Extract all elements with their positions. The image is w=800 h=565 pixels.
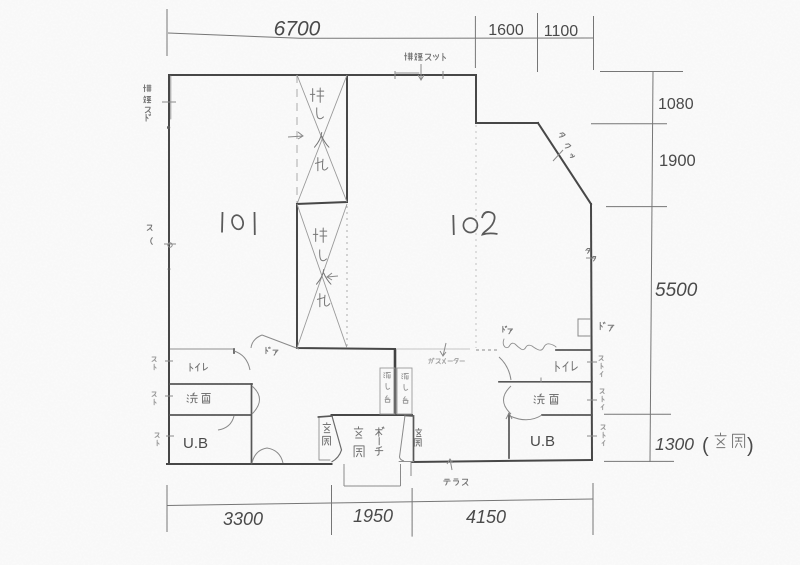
svg-text:1900: 1900 — [659, 152, 696, 170]
svg-text:1600: 1600 — [488, 22, 524, 39]
svg-text:): ) — [747, 435, 754, 457]
svg-text:1300: 1300 — [655, 434, 694, 454]
svg-text:3300: 3300 — [223, 509, 263, 529]
svg-text:1950: 1950 — [353, 506, 393, 526]
svg-text:1080: 1080 — [658, 96, 694, 113]
svg-text:6700: 6700 — [274, 18, 321, 41]
svg-text:U.B: U.B — [183, 435, 208, 452]
svg-text:5500: 5500 — [655, 280, 698, 301]
svg-text:(: ( — [702, 435, 709, 457]
svg-text:U.B: U.B — [530, 433, 555, 450]
svg-text:4150: 4150 — [466, 507, 506, 527]
svg-text:1100: 1100 — [544, 23, 579, 40]
